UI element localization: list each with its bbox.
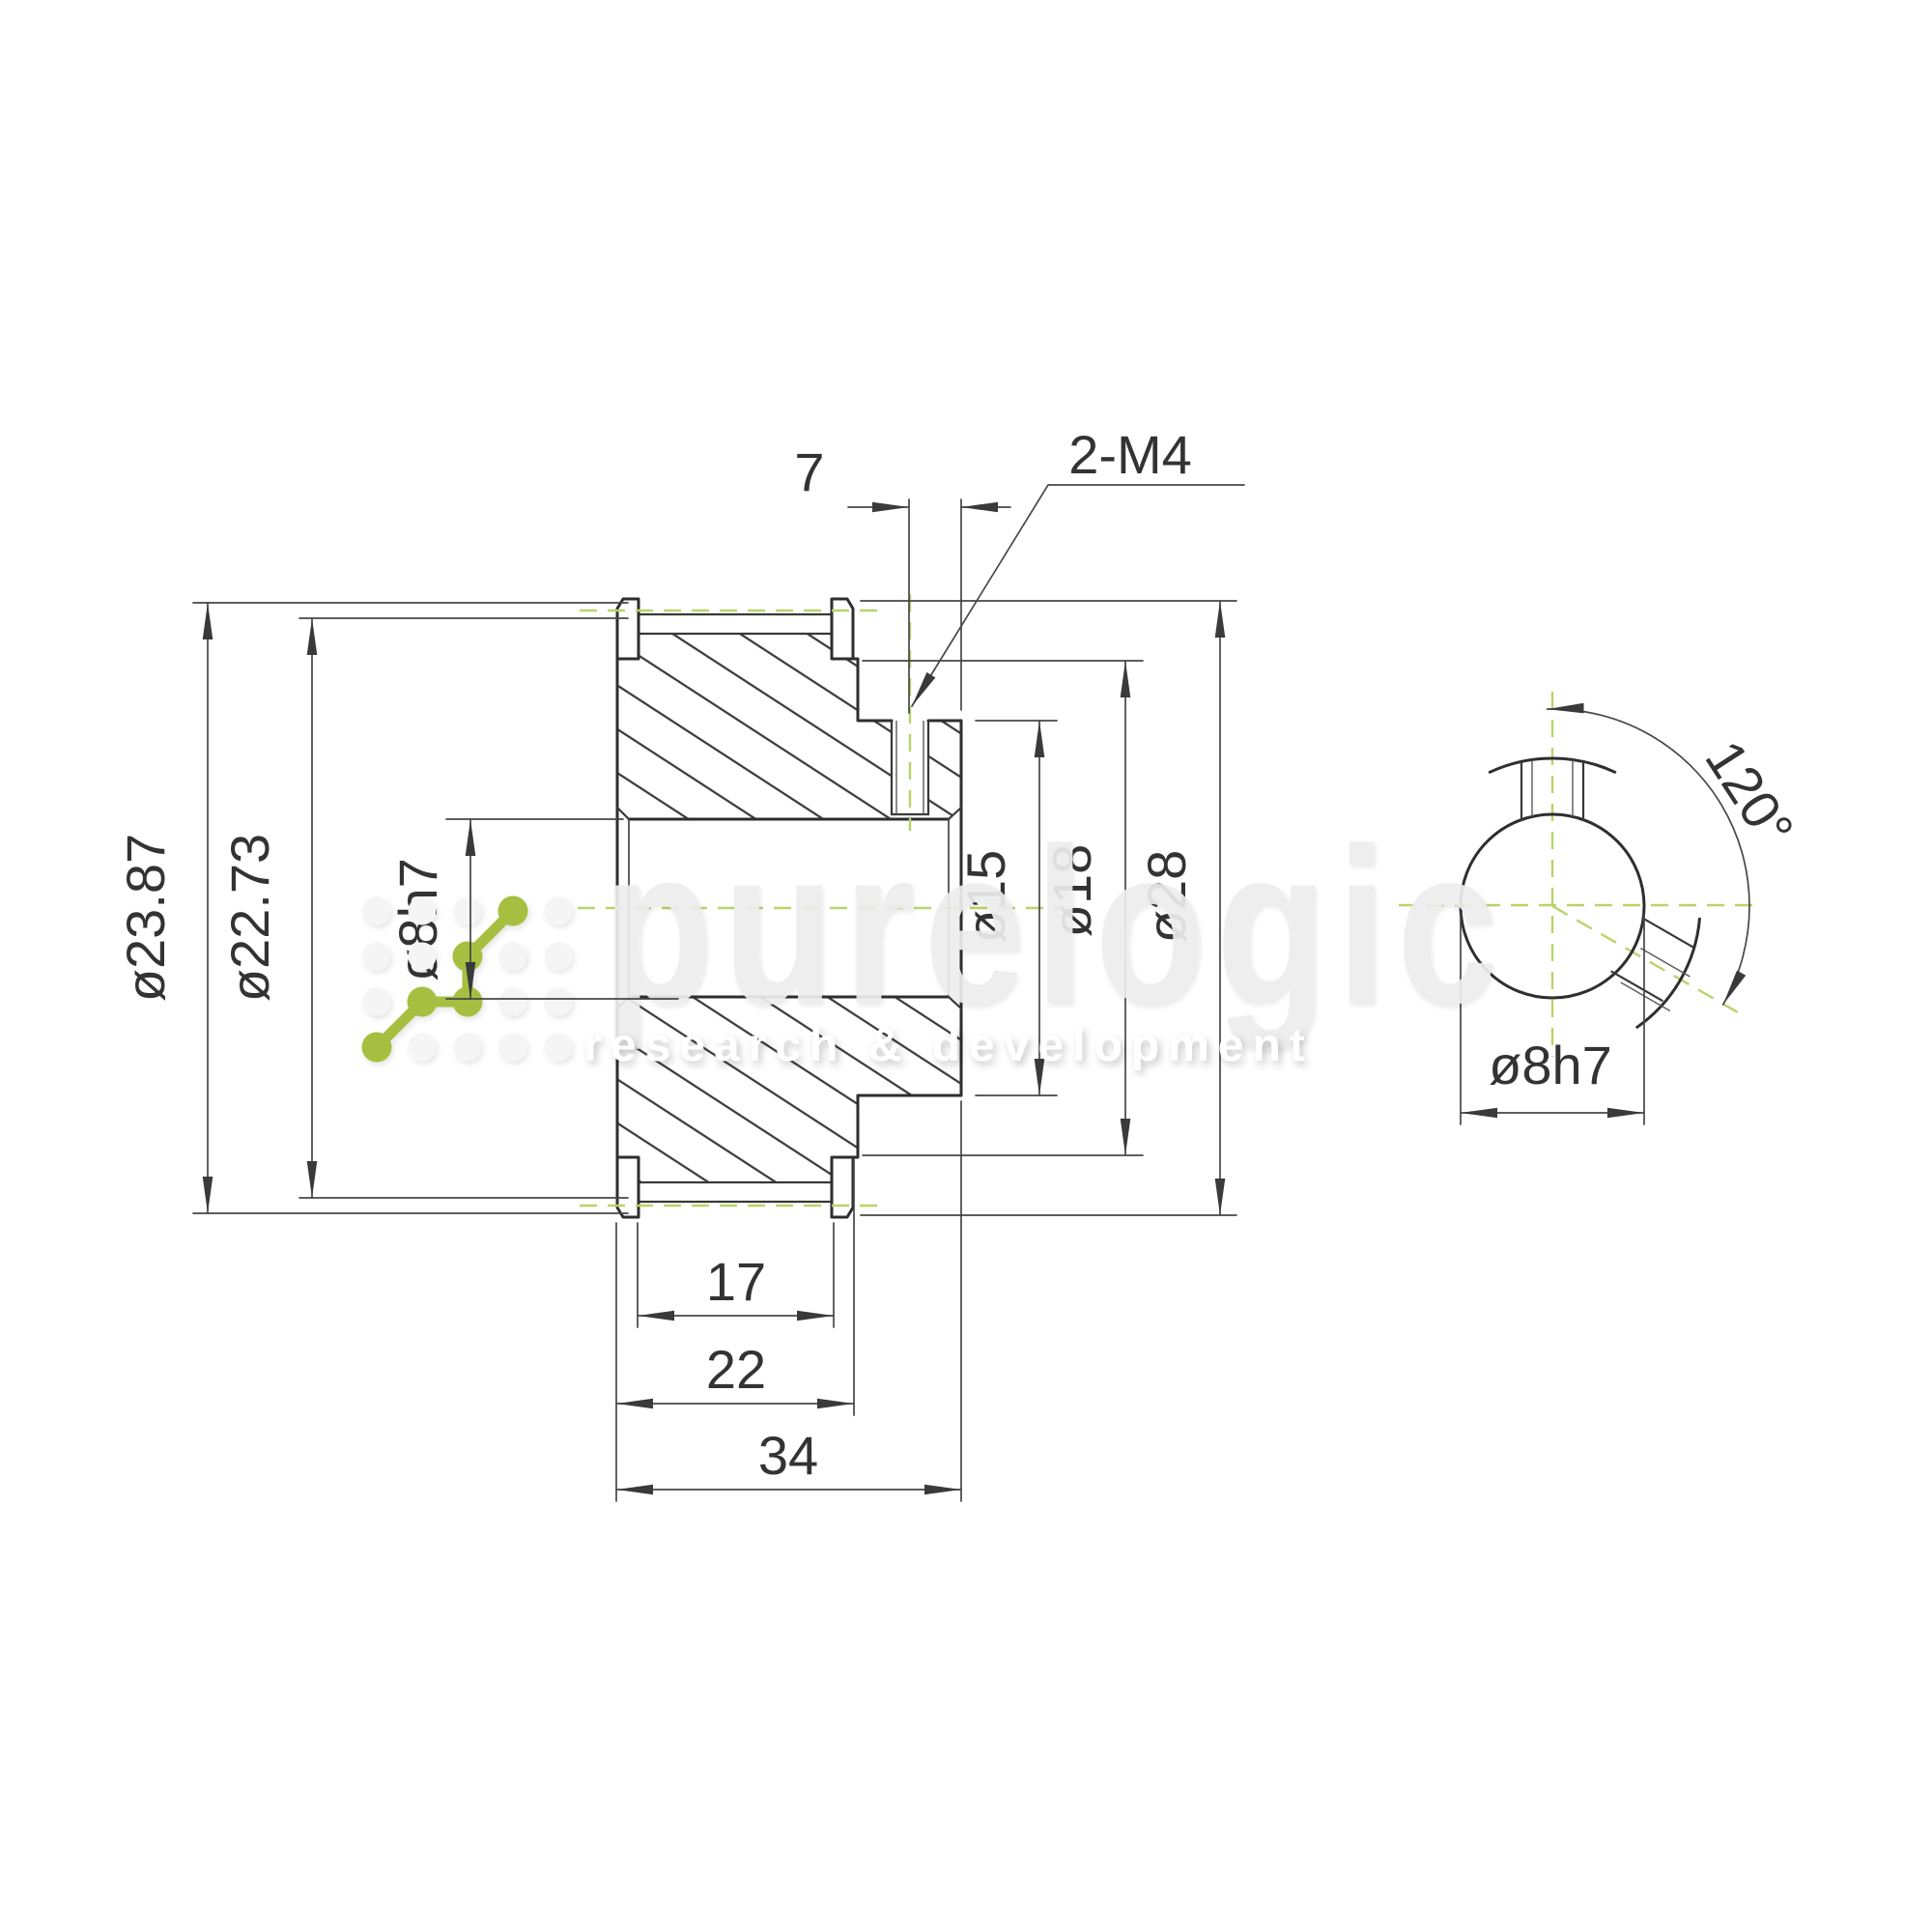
logo-node — [362, 1033, 392, 1063]
dim-belt-width-label: 22 — [706, 1339, 766, 1400]
dim-setscrew-offset-label: 7 — [794, 441, 824, 502]
leader-setscrew-spec-label: 2-M4 — [1068, 424, 1192, 485]
dim-tooth-od-label: ø22.73 — [219, 834, 280, 1002]
dim-tooth-width-label: 17 — [706, 1251, 766, 1312]
drawing-canvas: ø8h7 ø23.87 ø22.73 ø15 — [0, 0, 1932, 1932]
logo-node — [453, 942, 483, 972]
logo-node — [453, 987, 483, 1017]
dim-flange-od-label: ø23.87 — [115, 834, 176, 1002]
logo-node — [498, 896, 528, 926]
watermark-brand: purelogic — [602, 802, 1507, 1050]
watermark-tagline: research & development — [583, 1020, 1314, 1071]
dim-overall-width-label: 34 — [758, 1425, 818, 1486]
logo-node — [408, 987, 438, 1017]
